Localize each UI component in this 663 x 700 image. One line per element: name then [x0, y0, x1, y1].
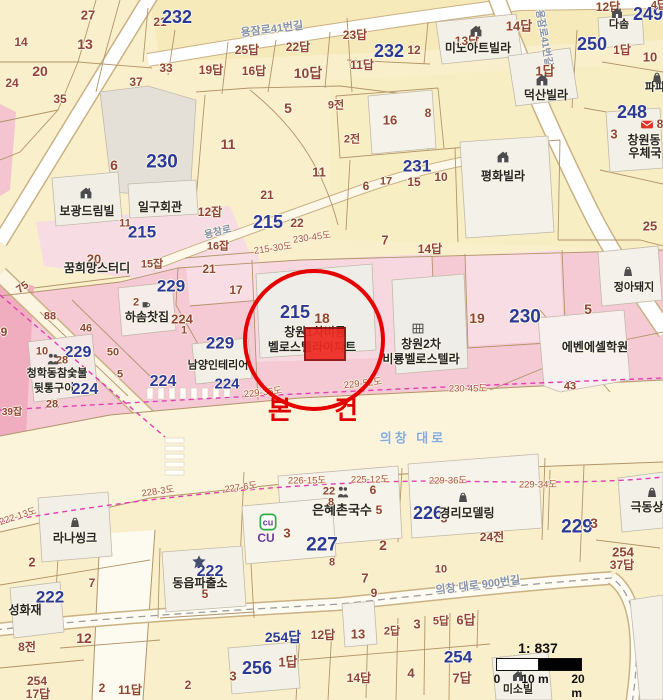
scale-bar: [496, 658, 582, 671]
map-scale-bar: 1: 837 0 10 m 20 m: [488, 640, 588, 687]
scale-ratio: 1: 837: [488, 640, 588, 656]
map-viewport: cu: [0, 0, 663, 700]
scale-tick-20m: 20 m: [571, 672, 584, 700]
scale-ticks: 0 10 m 20 m: [488, 671, 588, 687]
scale-tick-10m: 10 m: [521, 672, 548, 686]
scale-bar-white-segment: [497, 659, 539, 670]
subject-highlight-circle: [243, 269, 385, 411]
scale-tick-0: 0: [494, 672, 501, 686]
scale-bar-black-segment: [539, 659, 581, 670]
